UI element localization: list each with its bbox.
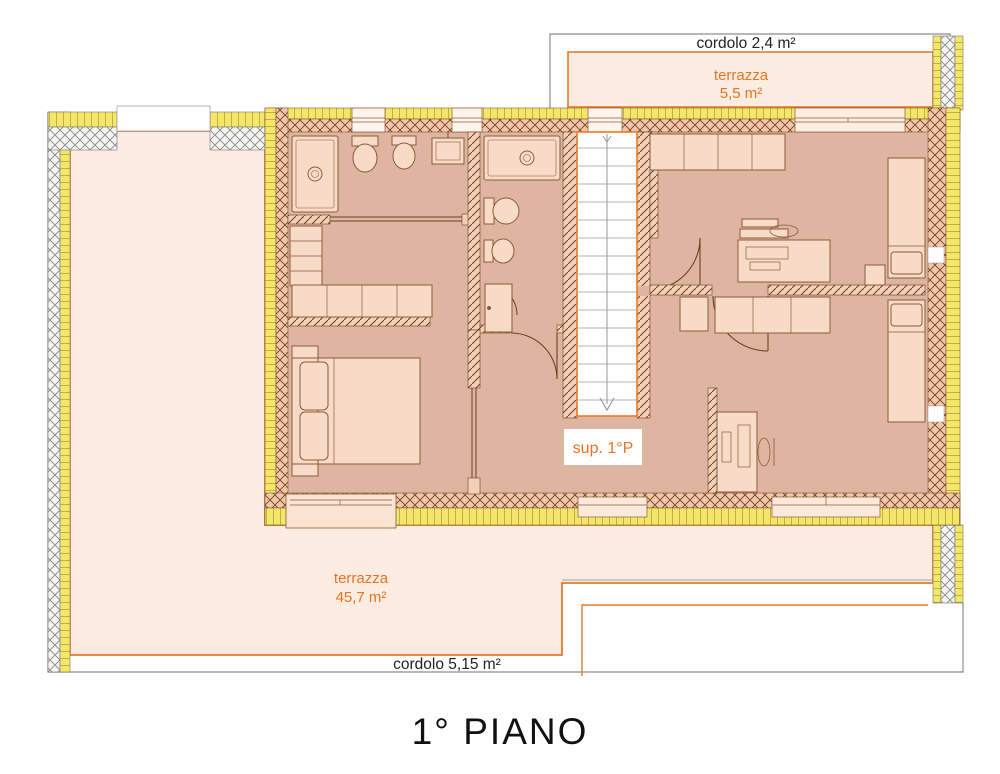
wardrobe-office: [650, 134, 785, 170]
page-title: 1° PIANO: [412, 711, 589, 752]
partition-closet-south: [288, 317, 430, 326]
terrace-top-parapet-column: [933, 36, 963, 110]
cabinet-bath2: [485, 284, 512, 332]
window-bottom-2: [772, 497, 880, 517]
stairwell: sup. 1°P: [563, 132, 650, 465]
bed-room2: [888, 300, 925, 422]
parapet-opening: [117, 106, 210, 131]
partition-hall-stub-2: [557, 325, 563, 333]
window-top-long: [795, 108, 905, 132]
slider-door-terrace: [286, 494, 396, 528]
cordolo-bottom-label: cordolo 5,15 m²: [393, 656, 501, 673]
toilet-2: [484, 198, 519, 224]
floor-plan-page: cordolo 2,4 m² terrazza 5,5 m² terrazza …: [0, 0, 1000, 774]
shower-2: [484, 136, 560, 180]
terrace-top-name: terrazza: [714, 67, 769, 84]
window-right-1: [928, 247, 944, 263]
partition-rooms-divider-e: [768, 285, 925, 295]
window-top-3: [588, 108, 622, 132]
partition-bath-divider: [468, 132, 480, 330]
terrace-main-area: 45,7 m²: [336, 589, 387, 606]
stair-wall-left: [563, 132, 577, 418]
wall-right: [928, 108, 960, 525]
partition-room2-desk: [708, 388, 717, 493]
parapet-left-wall: [48, 112, 70, 672]
terrace-main-name: terrazza: [334, 570, 389, 587]
partition-bedroom-east: [468, 330, 480, 388]
cordolo-step-outline: [582, 605, 928, 676]
shower-1: [292, 136, 338, 212]
wall-left: [265, 108, 288, 525]
nightstand-office: [865, 265, 885, 285]
wardrobe-room2: [715, 297, 830, 333]
terrace-strip-column: [933, 525, 963, 603]
cabinet-room2: [680, 297, 708, 331]
stair-label: sup. 1°P: [573, 440, 634, 457]
window-top-2: [452, 108, 482, 132]
stair-wall-right: [637, 132, 650, 418]
toilet-1: [352, 136, 378, 172]
bidet-1: [392, 136, 416, 169]
partition-rooms-divider-w: [650, 285, 712, 295]
window-right-2: [928, 406, 944, 422]
stair-wall-door-notch: [637, 286, 650, 296]
window-top-1: [352, 108, 385, 132]
partition-bath1-south: [288, 215, 330, 224]
window-bottom-1: [578, 497, 647, 517]
terrace-top-area: 5,5 m²: [720, 85, 763, 102]
floor-plan-canvas: cordolo 2,4 m² terrazza 5,5 m² terrazza …: [0, 0, 1000, 774]
bed-office: [888, 158, 925, 278]
terrace-top: cordolo 2,4 m² terrazza 5,5 m²: [550, 34, 963, 120]
bidet-2: [484, 239, 514, 263]
cordolo-top-label: cordolo 2,4 m²: [696, 35, 795, 52]
double-bed: [292, 346, 420, 476]
